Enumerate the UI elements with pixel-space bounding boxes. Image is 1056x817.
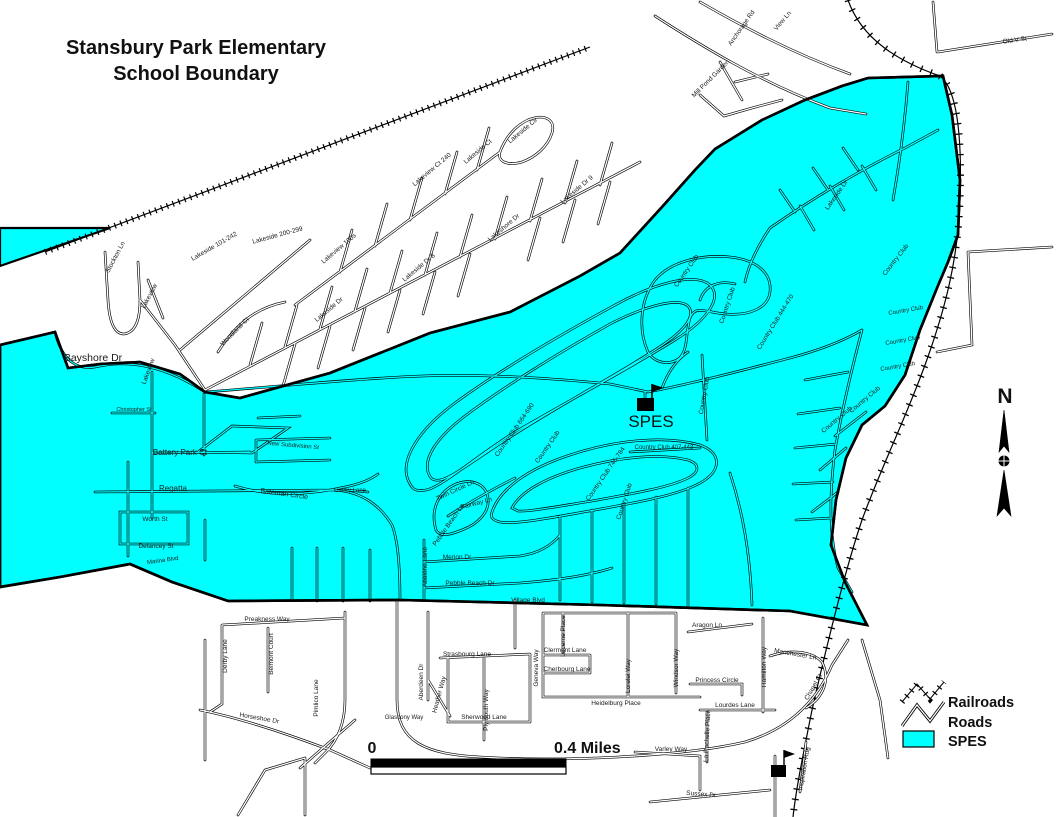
street-label: Delancey St bbox=[138, 543, 173, 550]
street-label: Lakeview 100s bbox=[320, 232, 358, 265]
legend-spes-swatch bbox=[903, 731, 934, 747]
street-label: Anchorage Rd bbox=[727, 9, 757, 47]
street-label: Christopher St bbox=[116, 407, 152, 413]
legend-roads-symbol bbox=[902, 702, 944, 726]
street-label: Lourdes Lane bbox=[715, 702, 755, 709]
street-label: Regatta bbox=[159, 484, 188, 493]
legend-roads-label: Roads bbox=[948, 715, 992, 731]
street-label: Princess Circle bbox=[695, 677, 739, 684]
street-label: Merion Dr bbox=[443, 554, 472, 561]
street-label: Manchester Ln bbox=[773, 647, 817, 661]
street-label: Hamilton Way bbox=[761, 646, 768, 687]
street-label: Lucerne Place bbox=[560, 615, 567, 657]
legend-railroads-label: Railroads bbox=[948, 695, 1014, 711]
street-label: Old V St bbox=[1002, 35, 1027, 45]
map-page: Bayshore DrStockton LnLakeviewLakeside 1… bbox=[0, 0, 1056, 817]
street-label: Village Blvd bbox=[511, 597, 545, 604]
street-label: Stockton Ln bbox=[105, 240, 127, 274]
street-label: Woodland Ct bbox=[219, 316, 251, 348]
street-label: Varley Way bbox=[655, 746, 688, 753]
map-title-line2: School Boundary bbox=[113, 63, 279, 85]
map-title-line1: Stansbury Park Elementary bbox=[66, 37, 327, 59]
street-label: Galley Lane bbox=[334, 488, 367, 494]
scale-end-label: 0.4 Miles bbox=[554, 740, 621, 757]
street-label: Derby Lane bbox=[222, 639, 229, 673]
street-label: Windsor Way bbox=[673, 648, 680, 687]
street-label: Lakeview Ct 240 bbox=[411, 151, 453, 187]
street-label: Belmont Court bbox=[268, 633, 275, 675]
street-label: Battery Park Ct bbox=[153, 448, 208, 457]
street-label: Geneva Way bbox=[533, 649, 540, 687]
street-label: Worth St bbox=[142, 516, 167, 523]
street-label: Aberdeen Dr bbox=[418, 663, 425, 701]
north-arrow-icon bbox=[999, 410, 1009, 452]
legend-railroads-symbol bbox=[902, 682, 944, 702]
street-label: Lakeside 200-299 bbox=[252, 225, 304, 245]
street-label: Preakness Way bbox=[244, 616, 290, 623]
street-label: Aragon Ln bbox=[692, 622, 722, 629]
street-label: La Rochelle Place bbox=[703, 709, 713, 762]
street-label: Heidelburg Place bbox=[591, 700, 641, 707]
street-label: Glascony Way bbox=[385, 715, 423, 721]
street-label: Bayshore Dr bbox=[64, 352, 123, 364]
street-label: View Ln bbox=[773, 10, 793, 32]
legend: Railroads Roads SPES bbox=[902, 682, 1014, 750]
street-label: Pimlico Lane bbox=[313, 679, 320, 717]
scale-start-label: 0 bbox=[368, 740, 377, 757]
street-label: Lorelei Way bbox=[625, 658, 632, 693]
flag-icon bbox=[784, 750, 795, 758]
street-label: Plymouth Way bbox=[483, 688, 490, 730]
street-label: Lakeside 101-242 bbox=[190, 231, 239, 263]
north-arrow: N bbox=[997, 385, 1013, 516]
legend-spes-label: SPES bbox=[948, 734, 987, 750]
street-label: Mill Pond Garden bbox=[691, 58, 732, 99]
street-label: Abalone Lane bbox=[422, 547, 429, 588]
street-label: Strasbourg Lane bbox=[443, 651, 491, 658]
spes-label: SPES bbox=[628, 412, 673, 431]
street-label: Sherwood Lane bbox=[461, 714, 507, 721]
street-label: Cherbourg Lane bbox=[544, 666, 591, 673]
street-label: Pebble Beach Dr bbox=[445, 580, 495, 587]
north-label: N bbox=[997, 385, 1012, 408]
street-label: Country Club 407-443 bbox=[635, 445, 694, 451]
school-boundary-map: Bayshore DrStockton LnLakeviewLakeside 1… bbox=[0, 0, 1056, 817]
street-label: Horseshoe Dr bbox=[239, 712, 281, 726]
